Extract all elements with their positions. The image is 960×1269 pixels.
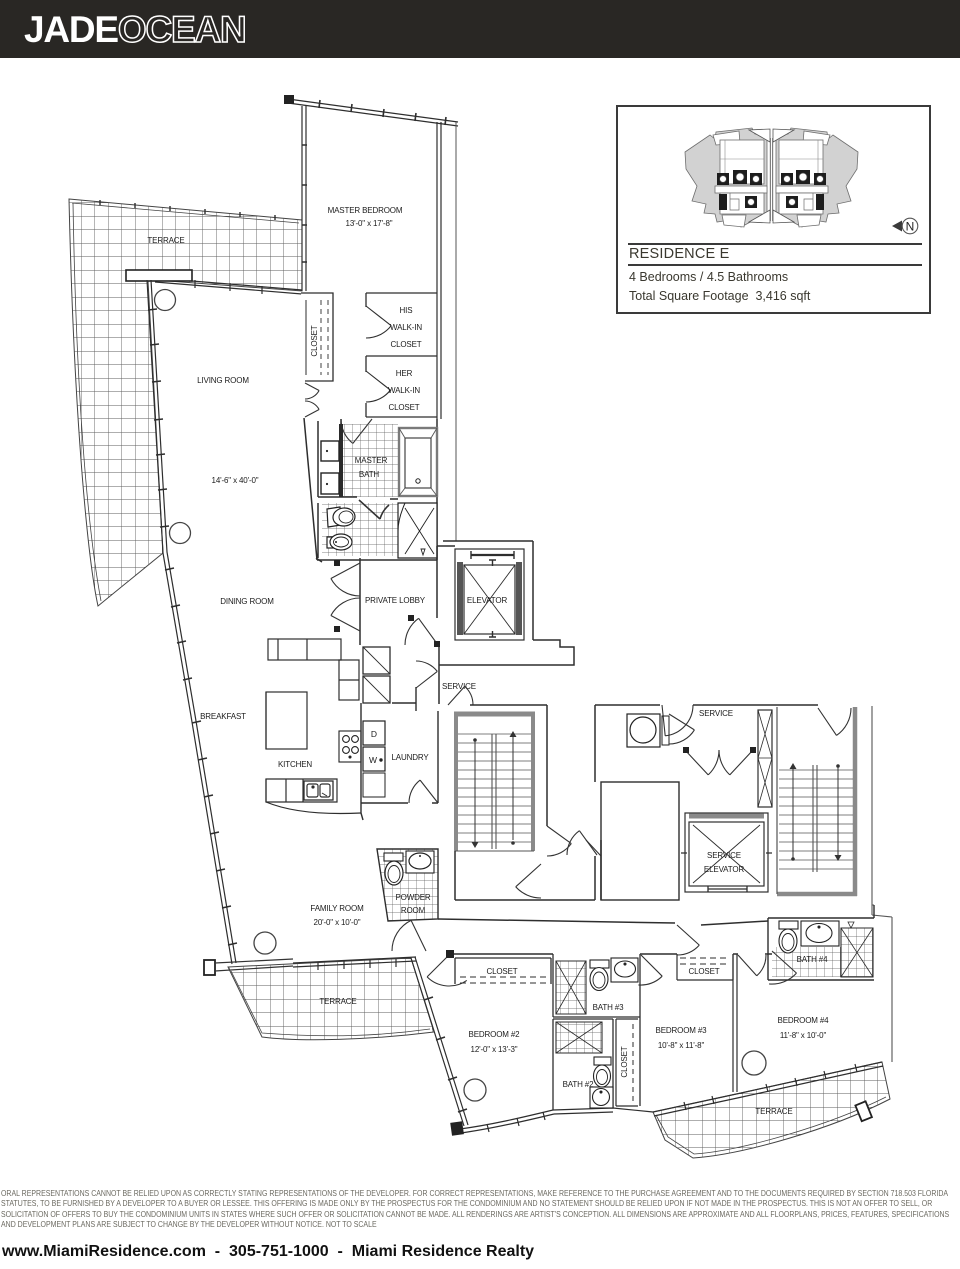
svg-text:CLOSET: CLOSET	[486, 967, 517, 976]
svg-text:CLOSET: CLOSET	[310, 325, 319, 356]
svg-text:MASTER BEDROOM: MASTER BEDROOM	[328, 206, 403, 215]
svg-text:SERVICE: SERVICE	[699, 709, 733, 718]
svg-text:BATH #2: BATH #2	[563, 1080, 595, 1089]
svg-text:20'-0" x 10'-0": 20'-0" x 10'-0"	[314, 918, 361, 927]
svg-text:HER: HER	[396, 369, 413, 378]
svg-text:11'-8" x 10'-0": 11'-8" x 10'-0"	[780, 1031, 827, 1040]
svg-text:MASTER: MASTER	[355, 456, 388, 465]
svg-text:KITCHEN: KITCHEN	[278, 760, 312, 769]
svg-text:10'-8" x 11'-8": 10'-8" x 11'-8"	[658, 1041, 705, 1050]
svg-text:LIVING ROOM: LIVING ROOM	[197, 376, 249, 385]
svg-text:12'-0" x 13'-3": 12'-0" x 13'-3"	[471, 1045, 518, 1054]
svg-text:BATH #4: BATH #4	[797, 955, 829, 964]
svg-text:BEDROOM #4: BEDROOM #4	[778, 1016, 830, 1025]
svg-text:BEDROOM #3: BEDROOM #3	[656, 1026, 708, 1035]
svg-text:FAMILY ROOM: FAMILY ROOM	[310, 904, 364, 913]
svg-text:BATH: BATH	[359, 470, 380, 479]
svg-text:CLOSET: CLOSET	[390, 340, 421, 349]
svg-text:BATH #3: BATH #3	[593, 1003, 625, 1012]
svg-text:14'-6" x 40'-0": 14'-6" x 40'-0"	[212, 476, 259, 485]
svg-text:ELEVATOR: ELEVATOR	[704, 865, 745, 874]
svg-text:DINING ROOM: DINING ROOM	[220, 597, 274, 606]
svg-text:PRIVATE LOBBY: PRIVATE LOBBY	[365, 596, 426, 605]
svg-text:CLOSET: CLOSET	[688, 967, 719, 976]
svg-text:HIS: HIS	[400, 306, 413, 315]
svg-text:SERVICE: SERVICE	[442, 682, 476, 691]
svg-text:ELEVATOR: ELEVATOR	[467, 596, 508, 605]
svg-text:LAUNDRY: LAUNDRY	[391, 753, 429, 762]
svg-text:POWDER: POWDER	[395, 893, 430, 902]
svg-text:ROOM: ROOM	[401, 906, 426, 915]
svg-text:TERRACE: TERRACE	[319, 997, 356, 1006]
svg-text:CLOSET: CLOSET	[388, 403, 419, 412]
svg-text:W: W	[369, 755, 377, 765]
svg-text:TERRACE: TERRACE	[147, 236, 184, 245]
svg-text:13'-0" x 17'-8": 13'-0" x 17'-8"	[346, 219, 393, 228]
svg-text:N: N	[906, 220, 915, 234]
svg-text:BEDROOM #2: BEDROOM #2	[469, 1030, 521, 1039]
svg-text:CLOSET: CLOSET	[620, 1046, 629, 1077]
svg-text:BREAKFAST: BREAKFAST	[200, 712, 246, 721]
svg-text:WALK-IN: WALK-IN	[390, 323, 422, 332]
svg-text:TERRACE: TERRACE	[755, 1107, 792, 1116]
svg-text:WALK-IN: WALK-IN	[388, 386, 420, 395]
svg-text:D: D	[371, 729, 377, 739]
svg-text:SERVICE: SERVICE	[707, 851, 741, 860]
